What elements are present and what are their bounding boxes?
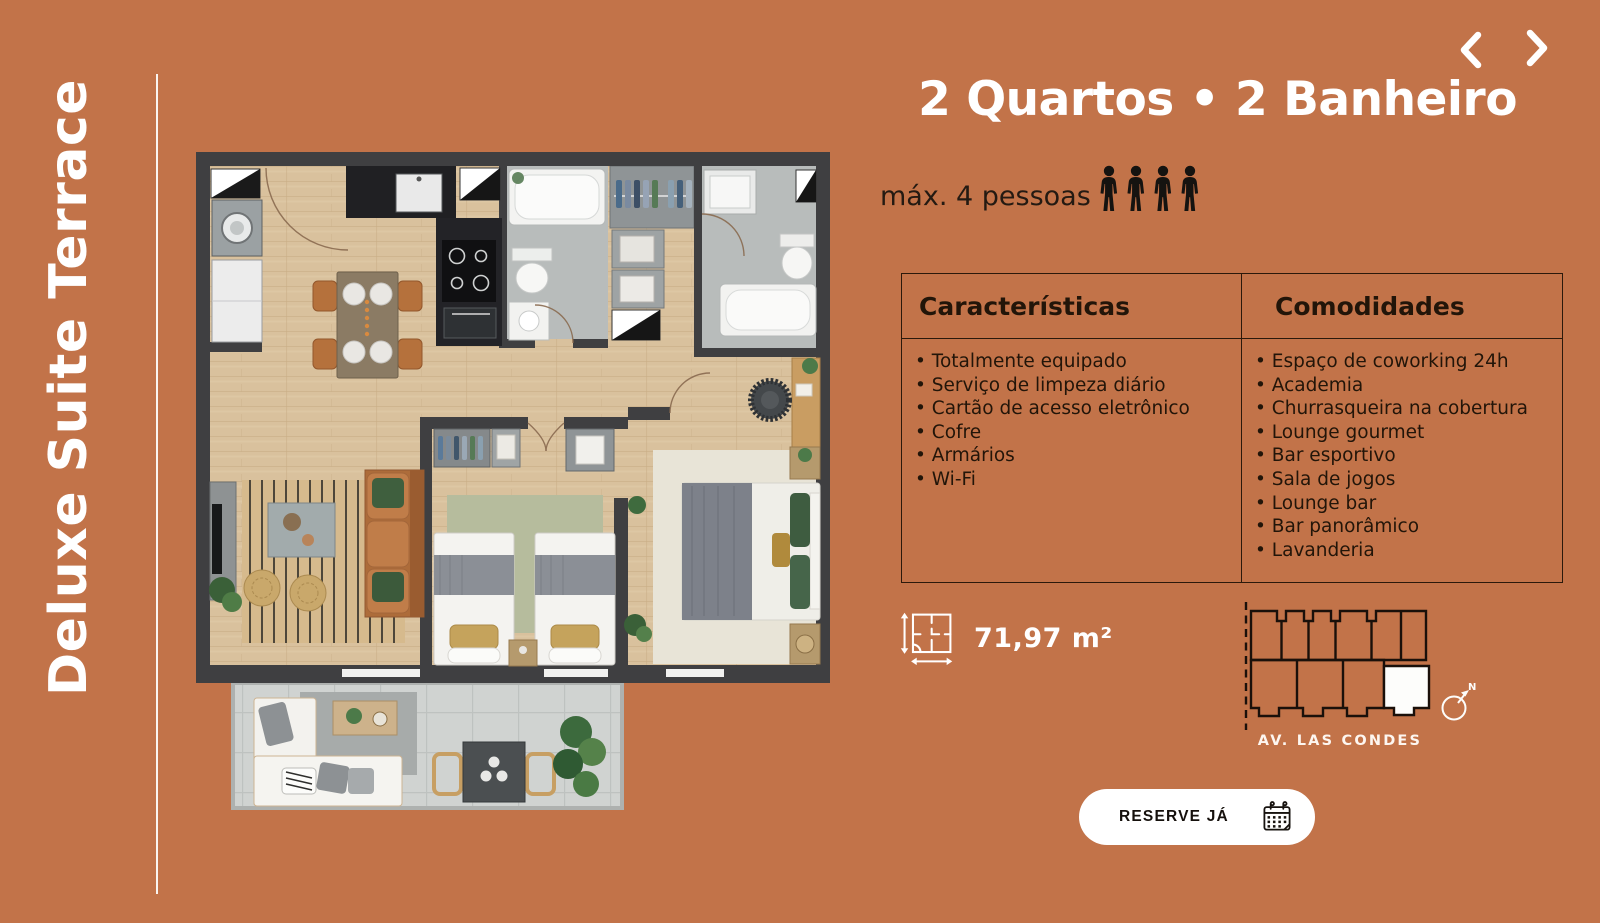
shower-2 [704,170,756,214]
toilet-2 [780,234,814,279]
compass-north-label: N [1468,682,1476,693]
page-title: 2 Quartos • 2 Banheiro [918,72,1517,127]
building-key-plan: N [1243,596,1478,746]
vanity-1 [509,302,549,340]
toilet-1 [512,248,552,293]
balcony-coffee-table [333,701,397,735]
sofa [365,470,424,617]
features-column: Características Totalmente equipadoServi… [902,274,1242,582]
carousel-prev-button[interactable] [1452,28,1490,74]
washing-machine [212,200,262,256]
hall-shaft-square [612,310,660,340]
reserve-button-label: RESERVE JÁ [1119,808,1229,826]
compass-icon: N [1443,682,1477,720]
carousel-next-button[interactable] [1518,26,1556,72]
list-item: Lavanderia [1255,539,1554,563]
amenities-list: Espaço de coworking 24hAcademiaChurrasqu… [1242,350,1562,562]
bedroom1-rug-band [447,495,603,537]
coffee-table [268,503,335,557]
bath2-shaft-square [796,170,816,202]
twin-nightstand [509,640,537,666]
list-item: Churrasqueira na cobertura [1255,397,1554,421]
floor-plan-image [196,152,830,812]
list-item: Sala de jogos [1255,468,1554,492]
master-bed [682,483,820,620]
list-item: Lounge gourmet [1255,421,1554,445]
chevron-right-icon [1522,28,1552,68]
bedroom1-wardrobe [434,429,520,467]
floor-area-value: 71,97 m² [974,623,1113,654]
person-icon [1152,162,1174,217]
bathtub-1 [509,169,605,225]
list-item: Serviço de limpeza diário [915,374,1233,398]
list-item: Academia [1255,374,1554,398]
list-item: Espaço de coworking 24h [1255,350,1554,374]
list-item: Lounge bar [1255,492,1554,516]
list-item: Cofre [915,421,1233,445]
calendar-icon [1259,799,1295,835]
desk-chair [751,381,789,419]
kitchen-shaft-square [460,168,500,200]
list-item: Wi-Fi [915,468,1233,492]
list-item: Totalmente equipado [915,350,1233,374]
suite-vertical-title: Deluxe Suite Terrace [34,70,104,705]
twin-bed-b [535,533,615,665]
capacity-label: máx. 4 pessoas [880,181,1091,212]
highlighted-unit [1384,666,1429,715]
person-icon [1098,162,1120,217]
person-icon [1179,162,1201,217]
features-header: Características [902,274,1241,339]
bathtub-2 [720,284,816,336]
amenities-column: Comodidades Espaço de coworking 24hAcade… [1242,274,1562,582]
list-item: Bar panorâmico [1255,515,1554,539]
list-item: Bar esportivo [1255,444,1554,468]
vertical-divider-line [156,74,158,894]
hall-wardrobe [614,180,692,208]
entry-cabinet [212,260,262,342]
entry-shaft-square [211,169,260,198]
features-table: Características Totalmente equipadoServi… [901,273,1563,583]
reserve-button[interactable]: RESERVE JÁ [1079,789,1315,845]
street-label: AV. LAS CONDES [1247,733,1433,749]
floor-area-icon [898,608,956,668]
bedroom1-closet [566,429,614,471]
capacity-person-icons [1098,162,1201,217]
person-icon [1125,162,1147,217]
chevron-left-icon [1456,30,1486,70]
features-list: Totalmente equipadoServiço de limpeza di… [902,350,1241,492]
suite-slide: Deluxe Suite Terrace 2 Quartos • 2 Banhe… [0,0,1600,923]
twin-bed-a [434,533,514,665]
list-item: Armários [915,444,1233,468]
list-item: Cartão de acesso eletrônico [915,397,1233,421]
amenities-header: Comodidades [1242,274,1562,339]
